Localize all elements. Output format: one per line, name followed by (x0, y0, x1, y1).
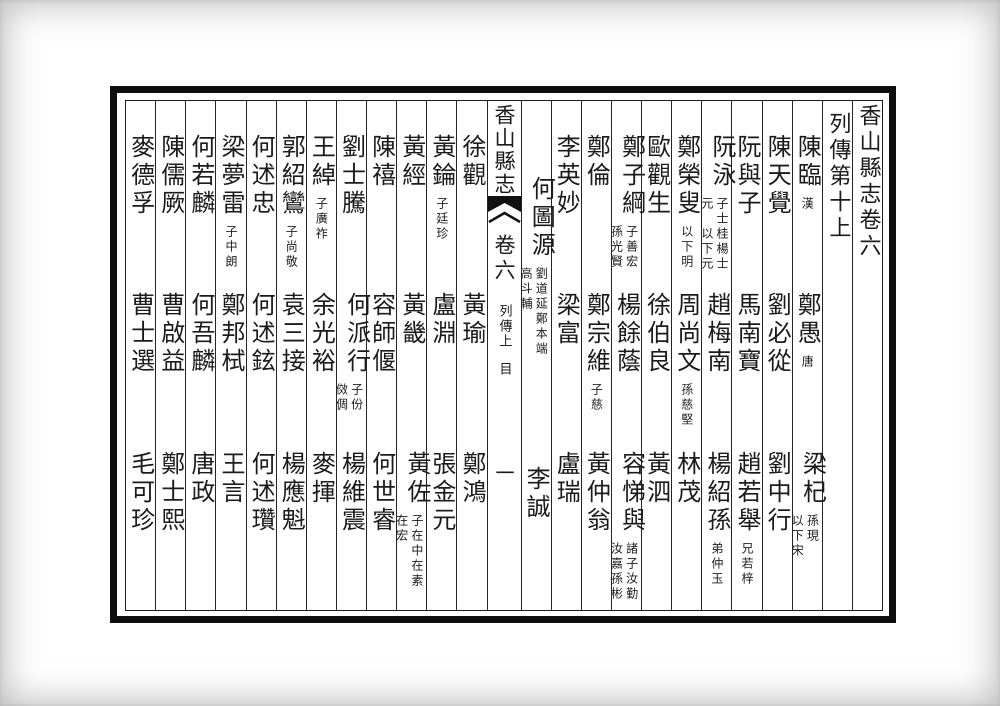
toc-entry: 唐政 (189, 451, 213, 507)
toc-entry: 鄭愚唐 (795, 292, 819, 370)
person-annotation-double: 子份傚倜 (334, 383, 362, 413)
person-name: 楊餘蔭 (612, 292, 640, 376)
toc-entry: 黃泗 (645, 451, 669, 507)
person-annotation: 唐 (800, 355, 814, 370)
toc-entry: 楊維震 (339, 451, 363, 535)
person-annotation: 子慈 (589, 383, 603, 413)
toc-entry: 何世睿 (370, 451, 394, 535)
person-name: 劉必從 (763, 292, 791, 376)
person-name: 黃仲翁 (582, 451, 610, 535)
toc-column-4: 阮泳子士桂楊士元 以下元 趙梅南 楊紹孫弟仲玉 (702, 101, 732, 610)
person-name: 梁富 (552, 292, 580, 348)
person-name: 林茂 (673, 451, 701, 507)
person-name: 張金元 (428, 451, 456, 535)
toc-entry: 麥德孚 (129, 134, 153, 218)
person-annotation: 子廷珍 (435, 197, 449, 242)
person-name: 趙若舉 (733, 451, 761, 535)
spine-page-number: 一 (491, 463, 518, 482)
toc-entry: 袁三接 (279, 292, 303, 376)
toc-column-7: 鄭子綱子善宏孫光賢 楊餘蔭 容悌與諸子汝勤汝嘉孫彬 (612, 101, 642, 610)
toc-column-8: 鄭倫 鄭宗維子慈 黃仲翁 (582, 101, 612, 610)
person-annotation-double: 劉道延鄭本端高斗輔 (519, 267, 547, 357)
toc-column-3: 阮與子 馬南寶 趙若舉兄若梓 (732, 101, 762, 610)
toc-column-5: 鄭榮叟以下明 周尚文孫慈堅 林茂 (672, 101, 702, 610)
person-name: 鄭子綱 (618, 134, 646, 218)
person-name: 何述鉉 (247, 292, 275, 376)
toc-entry: 陳臨漢 (795, 134, 819, 212)
person-name: 楊紹孫 (703, 451, 731, 535)
person-annotation: 子中朗 (224, 225, 238, 270)
person-annotation: 兄若梓 (740, 542, 754, 587)
person-name: 王言 (217, 451, 245, 507)
toc-entry: 盧淵 (430, 292, 454, 348)
person-name: 王綽 (307, 134, 335, 190)
person-name: 陳臨 (793, 134, 821, 190)
person-name: 鄭倫 (582, 134, 610, 190)
person-name: 阮泳 (708, 134, 736, 190)
person-name: 黃經 (398, 134, 426, 190)
person-name: 何吾麟 (187, 292, 215, 376)
person-name: 郭紹鸞 (277, 134, 305, 218)
person-name: 鄭宗維 (582, 292, 610, 376)
person-annotation-double: 子士桂楊士元 以下元 (700, 197, 728, 272)
toc-entry: 楊紹孫弟仲玉 (705, 451, 729, 587)
toc-entry: 李英妙 (554, 134, 578, 218)
toc-column-2: 陳天覺 劉必從 劉中行 (763, 101, 793, 610)
toc-column-10: 何圖源劉道延鄭本端高斗輔 李誠 (522, 101, 552, 610)
toc-entry: 趙若舉兄若梓 (735, 451, 759, 587)
person-name: 黃錀 (428, 134, 456, 190)
spine-column: 香山縣志 卷六 列傳上目 一 (488, 101, 522, 610)
toc-entry: 鄭士熙 (159, 451, 183, 535)
toc-column-16: 王綽子廣祚 余光裕 麥揮 (307, 101, 337, 610)
toc-entry: 楊應魁 (279, 451, 303, 535)
person-annotation: 子廣祚 (314, 197, 328, 242)
person-annotation: 弟仲玉 (710, 542, 724, 587)
toc-entry: 曹士選 (129, 292, 153, 376)
toc-entry: 鄭子綱子善宏孫光賢 (609, 134, 643, 270)
toc-entry: 劉必從 (765, 292, 789, 376)
toc-entry: 黃畿 (400, 292, 424, 348)
toc-entry: 梁夢雷子中朗 (219, 134, 243, 270)
person-name: 黃瑜 (458, 292, 486, 348)
toc-column-20: 何若麟 何吾麟 唐政 (186, 101, 216, 610)
person-name: 曹啟益 (157, 292, 185, 376)
person-annotation: 以下明 (680, 225, 694, 270)
toc-entry: 徐觀 (460, 134, 484, 190)
toc-entry: 容悌與諸子汝勤汝嘉孫彬 (609, 451, 643, 602)
toc-entry: 何圖源劉道延鄭本端高斗輔 (519, 176, 553, 357)
toc-entry: 鄭倫 (584, 134, 608, 190)
toc-entry: 黃瑜 (460, 292, 484, 348)
toc-column-11: 徐觀 黃瑜 鄭鴻 (457, 101, 487, 610)
toc-entry: 何若麟 (189, 134, 213, 218)
toc-entry: 楊餘蔭 (614, 292, 638, 376)
toc-entry: 盧瑞 (554, 451, 578, 507)
person-annotation-double: 諸子汝勤汝嘉孫彬 (609, 542, 637, 602)
person-name: 曹士選 (127, 292, 155, 376)
toc-entry: 徐伯良 (645, 292, 669, 376)
toc-entry: 余光裕 (309, 292, 333, 376)
person-name: 徐伯良 (643, 292, 671, 376)
toc-entry: 鄭鴻 (460, 451, 484, 507)
person-name: 袁三接 (277, 292, 305, 376)
person-name: 歐觀生 (643, 134, 671, 218)
toc-entry: 鄭邦栻 (219, 292, 243, 376)
person-name: 周尚文 (673, 292, 701, 376)
person-name: 鄭士熙 (157, 451, 185, 535)
toc-entry: 何述瓚 (249, 451, 273, 535)
toc-entry: 劉中行 (765, 451, 789, 535)
toc-entry: 郭紹鸞子尚敬 (279, 134, 303, 270)
person-name: 黃畿 (398, 292, 426, 348)
person-name: 麥德孚 (127, 134, 155, 218)
toc-entry: 何派行子份傚倜 (334, 292, 368, 413)
person-annotation-double: 子善宏孫光賢 (609, 225, 637, 270)
person-name: 鄭鴻 (458, 451, 486, 507)
toc-entry: 毛可珍 (129, 451, 153, 535)
person-name: 唐政 (187, 451, 215, 507)
person-name: 陳天覺 (763, 134, 791, 218)
person-name: 鄭愚 (793, 292, 821, 348)
toc-column-17: 郭紹鸞子尚敬 袁三接 楊應魁 (277, 101, 307, 610)
person-name: 趙梅南 (703, 292, 731, 376)
toc-entry: 何述忠 (249, 134, 273, 218)
person-name: 何述忠 (247, 134, 275, 218)
toc-entry: 劉士騰 (339, 134, 363, 218)
volume-title-column: 香山縣志卷六 (853, 101, 882, 610)
person-name: 毛可珍 (127, 451, 155, 535)
toc-column-1: 陳臨漢 鄭愚唐 梁杞孫現以下宋 (793, 101, 823, 610)
person-name: 容師偃 (368, 292, 396, 376)
person-name: 容悌與 (618, 451, 646, 535)
toc-entry: 周尚文孫慈堅 (675, 292, 699, 428)
person-name: 何圖源 (527, 176, 555, 260)
toc-entry: 阮與子 (735, 134, 759, 218)
person-name: 麥揮 (307, 451, 335, 507)
spine-title: 香山縣志 (489, 104, 519, 196)
person-name: 余光裕 (307, 292, 335, 376)
toc-entry: 阮泳子士桂楊士元 以下元 (700, 134, 734, 272)
toc-column-22: 麥德孚 曹士選 毛可珍 (126, 101, 156, 610)
toc-entry: 黃錀子廷珍 (430, 134, 454, 242)
person-name: 何世睿 (368, 451, 396, 535)
person-name: 馬南寶 (733, 292, 761, 376)
spine-section-label: 列傳上 (497, 304, 512, 349)
toc-entry: 陳儒厥 (159, 134, 183, 218)
spine-section-sub: 目 (497, 362, 512, 377)
toc-column-12: 黃錀子廷珍 盧淵 張金元 (427, 101, 457, 610)
person-name: 李英妙 (552, 134, 580, 218)
person-name: 鄭榮叟 (673, 134, 701, 218)
toc-column-9: 李英妙 梁富 盧瑞 (552, 101, 582, 610)
person-name: 鄭邦栻 (217, 292, 245, 376)
person-name: 黃泗 (643, 451, 671, 507)
person-name: 盧瑞 (552, 451, 580, 507)
toc-entry: 梁富 (554, 292, 578, 348)
toc-entry: 歐觀生 (645, 134, 669, 218)
section-title-column: 列傳第十上 (823, 101, 853, 610)
person-name: 楊維震 (337, 451, 365, 535)
fishtail-icon (488, 196, 521, 230)
person-annotation: 子尚敬 (284, 225, 298, 270)
toc-column-15: 劉士騰 何派行子份傚倜 楊維震 (337, 101, 367, 610)
toc-column-14: 陳禧 容師偃 何世睿 (367, 101, 397, 610)
toc-entry: 林茂 (675, 451, 699, 507)
person-name: 黃佐 (403, 451, 431, 507)
person-name: 何派行 (343, 292, 371, 376)
toc-entry: 何吾麟 (189, 292, 213, 376)
page-grid: 香山縣志卷六 列傳第十上 陳臨漢 鄭愚唐 梁杞孫現以下宋 陳天覺 劉必從 劉中行… (125, 100, 883, 611)
toc-entry: 陳天覺 (765, 134, 789, 218)
toc-entry: 王綽子廣祚 (309, 134, 333, 242)
toc-column-19: 梁夢雷子中朗 鄭邦栻 王言 (216, 101, 246, 610)
toc-entry: 張金元 (430, 451, 454, 535)
toc-column-13: 黃經 黃畿 黃佐子在中在素在宏 (397, 101, 427, 610)
toc-entry: 容師偃 (370, 292, 394, 376)
person-name: 徐觀 (458, 134, 486, 190)
toc-entry: 曹啟益 (159, 292, 183, 376)
toc-entry: 陳禧 (370, 134, 394, 190)
toc-entry: 鄭榮叟以下明 (675, 134, 699, 270)
person-name: 盧淵 (428, 292, 456, 348)
section-title: 列傳第十上 (821, 112, 853, 242)
person-annotation-double: 子在中在素在宏 (395, 514, 423, 589)
person-name: 梁夢雷 (217, 134, 245, 218)
toc-column-6: 歐觀生 徐伯良 黃泗 (642, 101, 672, 610)
person-name: 何若麟 (187, 134, 215, 218)
toc-entry: 黃佐子在中在素在宏 (395, 451, 429, 589)
person-annotation: 漢 (800, 197, 814, 212)
toc-column-21: 陳儒厥 曹啟益 鄭士熙 (156, 101, 186, 610)
toc-entry: 趙梅南 (705, 292, 729, 376)
toc-entry: 王言 (219, 451, 243, 507)
toc-entry: 馬南寶 (735, 292, 759, 376)
spine-volume: 卷六 (489, 234, 519, 284)
person-name: 梁杞 (798, 451, 826, 507)
spine-section: 列傳上目 (495, 304, 514, 377)
person-name: 楊應魁 (277, 451, 305, 535)
toc-entry: 黃經 (400, 134, 424, 190)
toc-entry: 李誠 (524, 466, 548, 522)
volume-title: 香山縣志卷六 (851, 104, 883, 260)
person-name: 何述瓚 (247, 451, 275, 535)
person-name: 劉士騰 (337, 134, 365, 218)
toc-entry: 鄭宗維子慈 (584, 292, 608, 413)
toc-column-18: 何述忠 何述鉉 何述瓚 (247, 101, 277, 610)
person-annotation-double: 孫現以下宋 (790, 514, 818, 559)
person-annotation: 孫慈堅 (680, 383, 694, 428)
person-name: 阮與子 (733, 134, 761, 218)
toc-entry: 麥揮 (309, 451, 333, 507)
toc-entry: 梁杞孫現以下宋 (790, 451, 824, 559)
toc-entry: 黃仲翁 (584, 451, 608, 535)
toc-entry: 何述鉉 (249, 292, 273, 376)
person-name: 陳禧 (368, 134, 396, 190)
person-name: 陳儒厥 (157, 134, 185, 218)
person-name: 李誠 (522, 466, 550, 522)
person-name: 劉中行 (763, 451, 791, 535)
